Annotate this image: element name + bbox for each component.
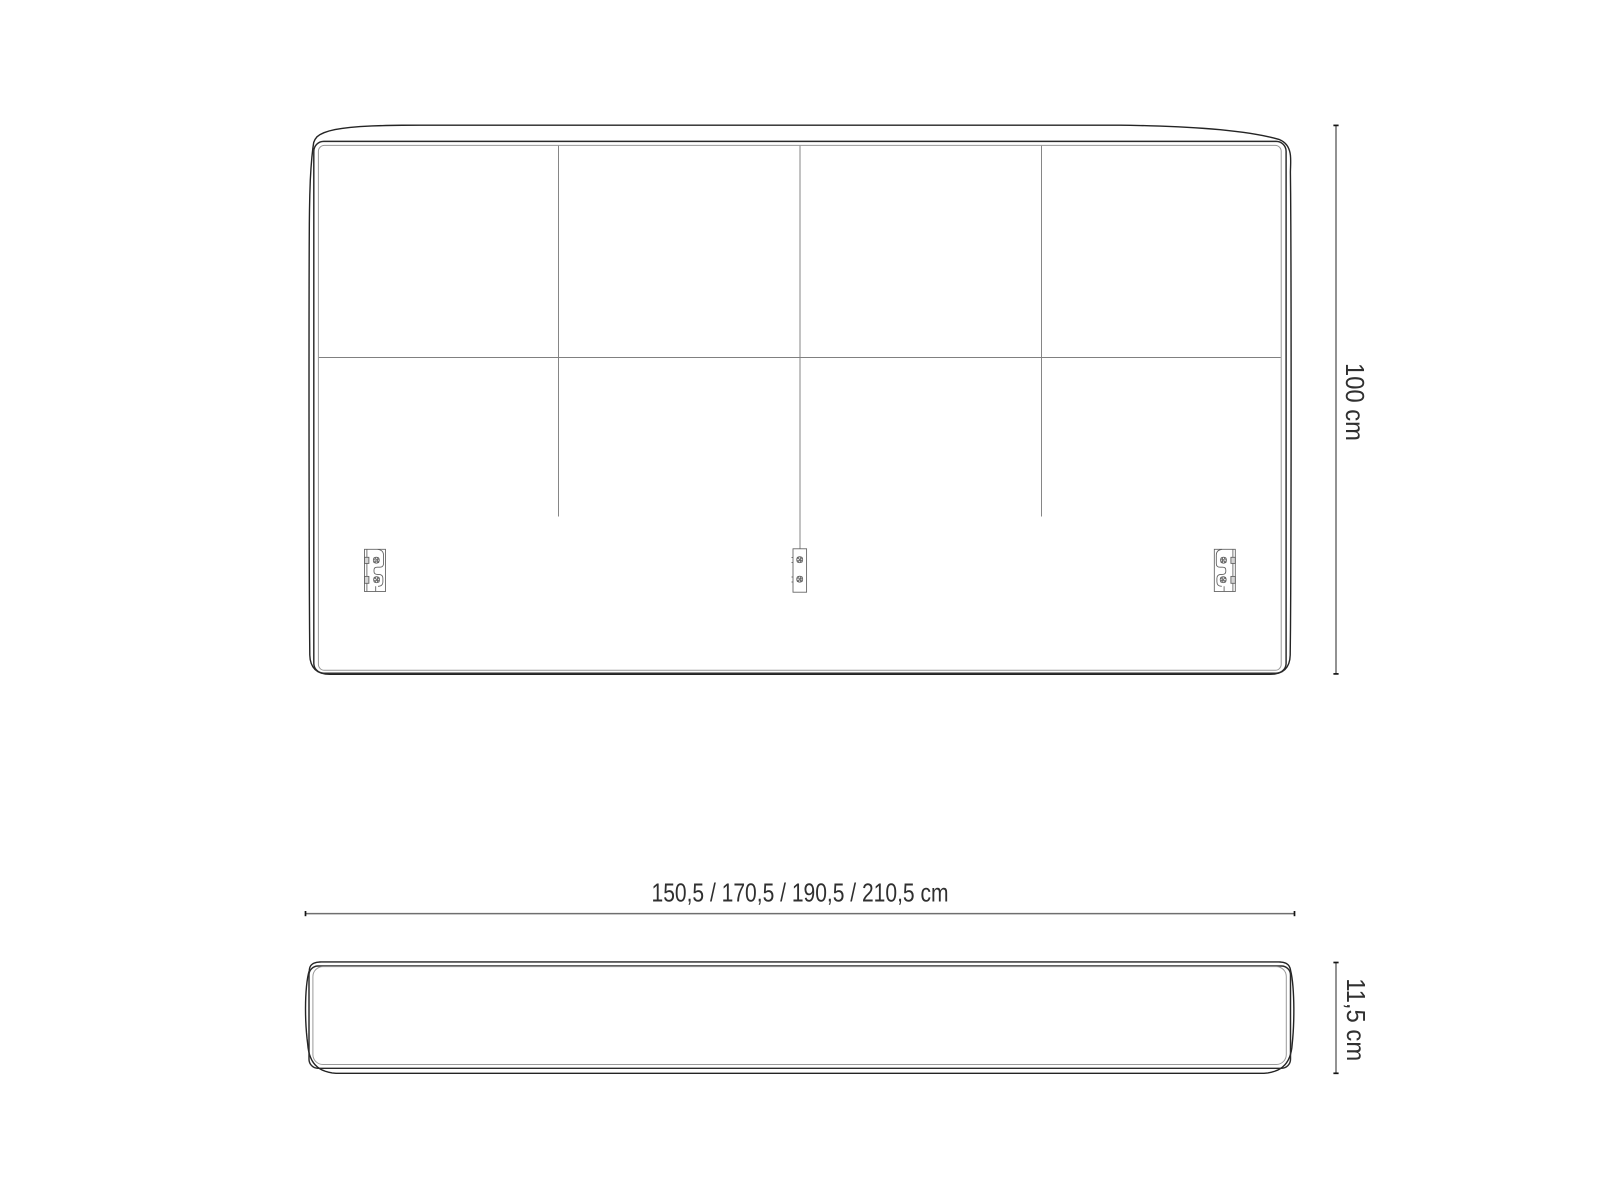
svg-text:100 cm: 100 cm (1340, 363, 1370, 441)
svg-text:11,5 cm: 11,5 cm (1341, 978, 1371, 1061)
svg-text:150,5 / 170,5 / 190,5 / 210,5: 150,5 / 170,5 / 190,5 / 210,5 cm (652, 878, 949, 908)
